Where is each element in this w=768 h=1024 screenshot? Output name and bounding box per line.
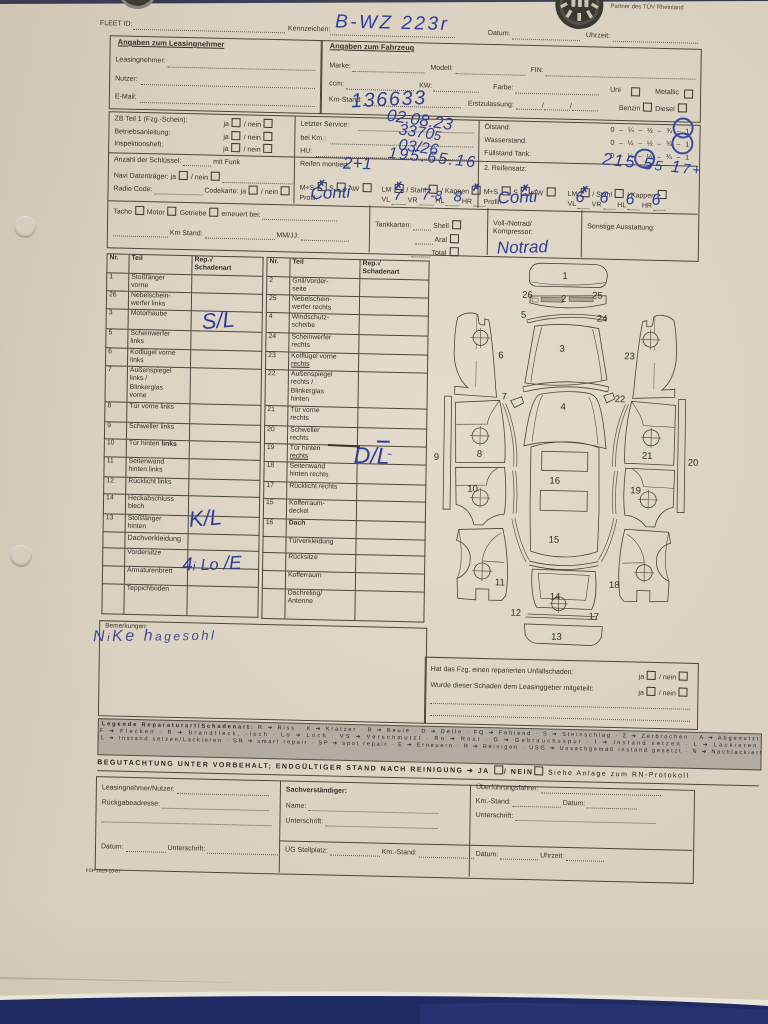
svg-text:19: 19 (630, 485, 641, 496)
svg-text:23: 23 (624, 351, 635, 362)
svg-text:6: 6 (498, 350, 503, 361)
svg-text:5: 5 (521, 310, 526, 321)
svg-text:21: 21 (642, 451, 653, 462)
svg-text:3: 3 (559, 344, 564, 355)
svg-text:4: 4 (560, 402, 565, 413)
svg-text:26: 26 (522, 290, 533, 301)
svg-text:14: 14 (550, 592, 561, 603)
svg-text:8: 8 (477, 449, 482, 460)
svg-text:11: 11 (495, 577, 505, 588)
svg-text:17: 17 (588, 611, 599, 622)
svg-text:20: 20 (688, 458, 699, 469)
svg-text:12: 12 (510, 608, 521, 619)
svg-text:15: 15 (549, 534, 560, 545)
svg-text:1: 1 (562, 271, 567, 282)
svg-text:10: 10 (467, 484, 478, 495)
svg-text:24: 24 (597, 314, 608, 325)
svg-text:9: 9 (434, 452, 439, 463)
svg-text:16: 16 (549, 475, 560, 486)
svg-text:22: 22 (615, 394, 626, 405)
svg-text:2: 2 (561, 294, 566, 305)
svg-text:18: 18 (609, 580, 620, 591)
svg-text:7: 7 (502, 391, 507, 402)
svg-text:13: 13 (551, 632, 562, 643)
